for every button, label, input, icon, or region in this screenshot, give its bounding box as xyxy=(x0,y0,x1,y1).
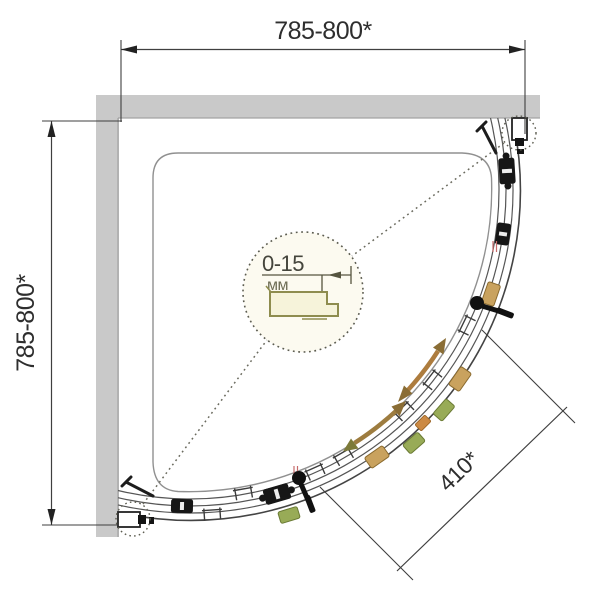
hinge-tan-icon xyxy=(364,445,389,468)
leader-top-right xyxy=(352,143,504,256)
leader-bottom-left xyxy=(143,340,267,504)
hinge-green-icon xyxy=(433,399,455,422)
seal-strip-top xyxy=(477,122,496,153)
dimension-top-label: 785-800* xyxy=(274,17,372,45)
hinge-green-icon xyxy=(278,506,301,523)
detail-range-label: 0-15 xyxy=(262,251,304,276)
dim-arrow-icon xyxy=(48,509,56,525)
handle-base xyxy=(496,307,515,319)
roller-clamp-icon xyxy=(257,481,297,507)
hinge-orange-icon xyxy=(415,415,431,431)
dimension-left-label: 785-800* xyxy=(12,273,40,371)
handle-base xyxy=(304,495,316,514)
wall-top xyxy=(96,95,540,118)
extension-lines xyxy=(121,40,525,134)
wall-profile-section xyxy=(270,292,338,316)
detail-view: 0-15 мм xyxy=(243,232,363,352)
shower-enclosure-dimension-diagram: 0-15 мм 785-800* 785-800* 410* xyxy=(0,0,600,600)
wall-left xyxy=(96,95,119,537)
clip-icon xyxy=(304,462,327,481)
bracket-clips xyxy=(202,314,477,521)
diagram-canvas: 0-15 мм 785-800* 785-800* 410* xyxy=(0,0,600,600)
seal-strip-bottom xyxy=(122,477,153,496)
dimension-entry-label: 410* xyxy=(433,446,484,497)
hinge-green-icon xyxy=(403,432,426,454)
dim-arrow-icon xyxy=(509,46,525,54)
dimension-line xyxy=(397,407,567,571)
roller-clamp-icon xyxy=(171,499,193,514)
dim-arrow-icon xyxy=(48,121,56,137)
dim-arrow-icon xyxy=(121,46,137,54)
extension-lines xyxy=(320,330,575,580)
dimension-entry: 410* xyxy=(320,330,575,580)
